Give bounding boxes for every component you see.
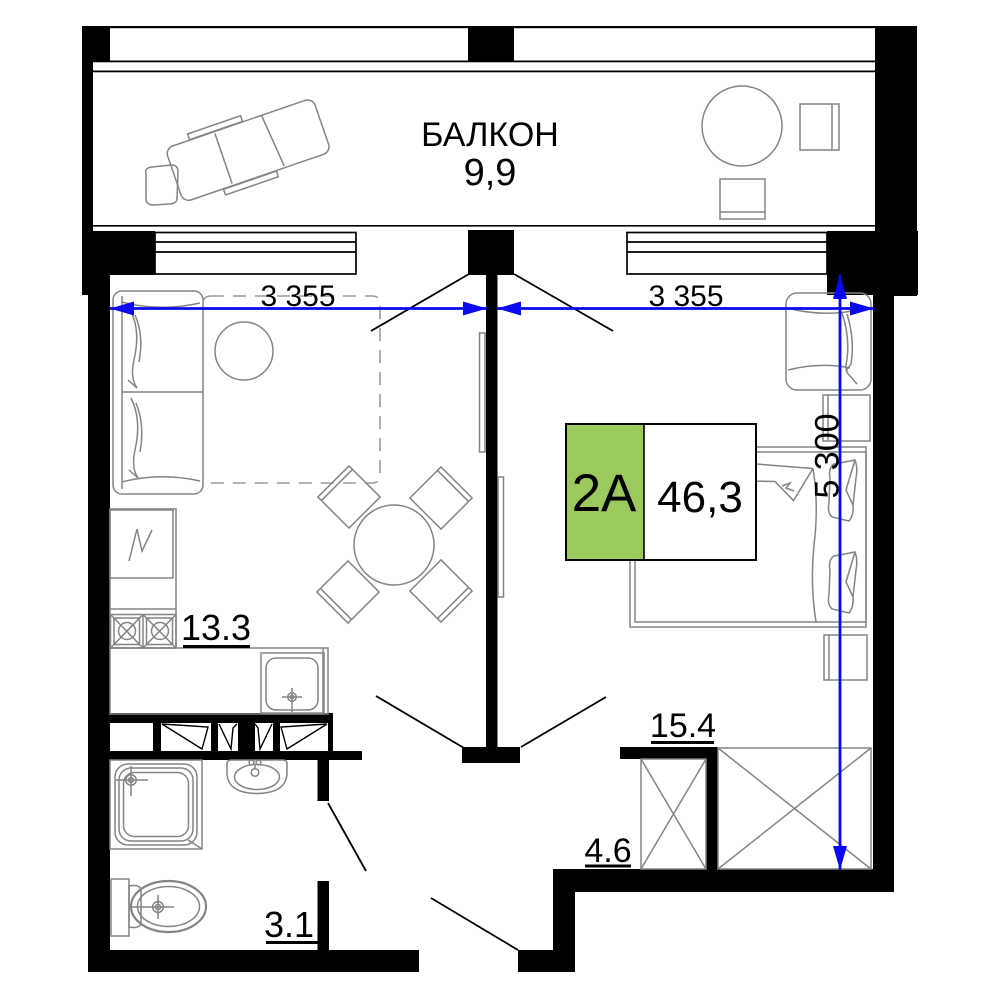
svg-text:9,9: 9,9 [464, 152, 517, 194]
svg-text:2А: 2А [572, 464, 637, 523]
svg-text:3.1: 3.1 [264, 904, 314, 945]
svg-text:5 300: 5 300 [809, 413, 847, 498]
svg-text:БАЛКОН: БАЛКОН [421, 116, 559, 154]
svg-text:13.3: 13.3 [181, 607, 251, 648]
svg-text:3 355: 3 355 [648, 280, 723, 313]
svg-text:46,3: 46,3 [657, 473, 743, 522]
svg-text:4.6: 4.6 [584, 832, 631, 870]
svg-text:3 355: 3 355 [260, 280, 335, 313]
svg-text:15.4: 15.4 [650, 707, 716, 745]
